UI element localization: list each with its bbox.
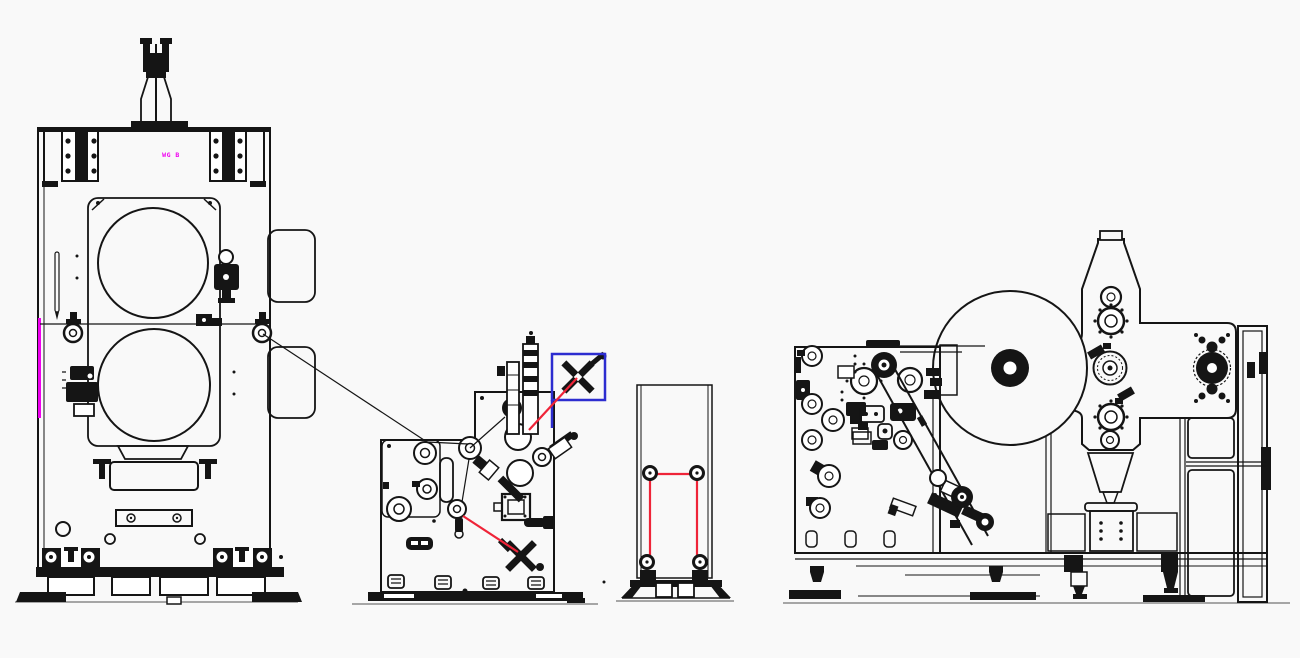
machine-base (16, 547, 302, 604)
tower-frame (637, 385, 712, 578)
coater-machine (352, 331, 607, 604)
right-frame-column (1238, 326, 1271, 602)
top-roll (98, 208, 208, 318)
process-rollers (795, 346, 942, 547)
red-laser-line-lower (463, 516, 518, 552)
top-mount-brackets (42, 131, 266, 187)
vent-slots (388, 537, 544, 589)
frame-panels (1186, 418, 1266, 596)
web-path-to-coater (263, 334, 427, 442)
level-rod (55, 252, 59, 320)
roll-support-cradle (93, 446, 217, 526)
hydraulic-cylinder (131, 38, 188, 129)
highlight-box[interactable] (552, 354, 605, 428)
turret-pedestal (1048, 453, 1177, 551)
bottom-roll-gearbox (62, 366, 98, 416)
top-roll-actuator (214, 250, 239, 303)
winder-base (789, 553, 1268, 602)
machine-line-drawing: WG B (0, 0, 1300, 658)
turret-winder-machine (783, 231, 1290, 603)
calender-machine: WG B (15, 38, 427, 604)
infeed-rollers (383, 442, 453, 523)
turret-top-cap (1100, 231, 1122, 240)
left-guide-roller (64, 312, 82, 342)
stamp-label: WG B (162, 151, 180, 159)
web-path-internal (427, 417, 505, 502)
tower-base (621, 580, 731, 598)
accumulator-tower (616, 385, 734, 601)
bottom-roll (98, 329, 210, 441)
festoon-web-path (650, 474, 697, 562)
calender-body (38, 128, 270, 568)
right-side-tabs (268, 230, 315, 418)
cad-line-drawing-canvas: WG B (0, 0, 1300, 658)
